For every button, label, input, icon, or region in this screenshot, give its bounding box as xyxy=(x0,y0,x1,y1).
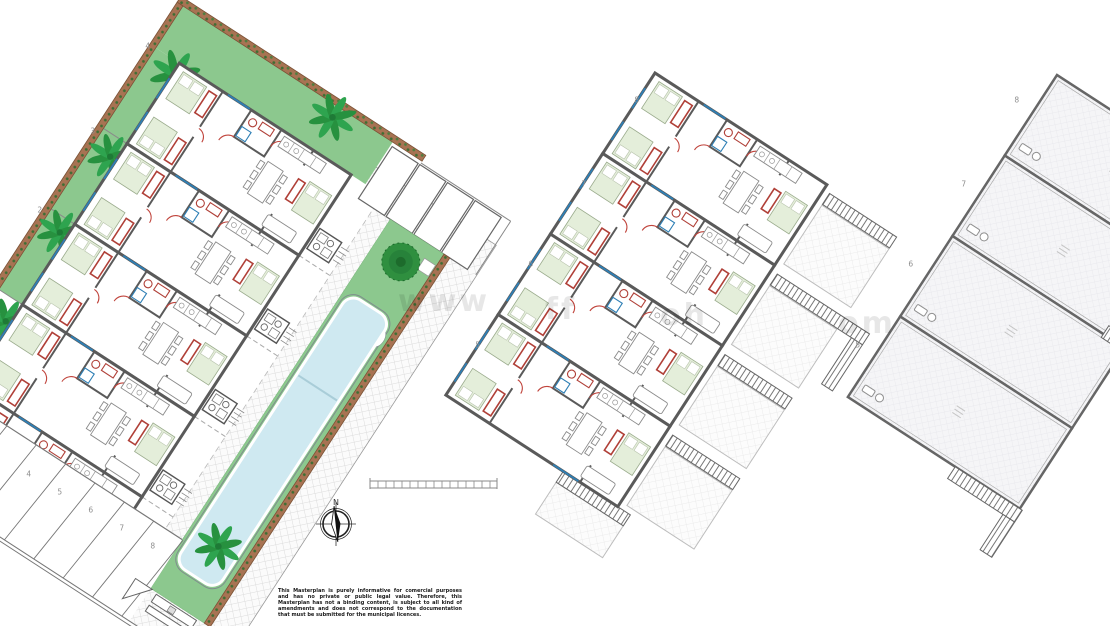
parking-label: 7 xyxy=(119,524,124,533)
unit-label: 4 xyxy=(145,42,150,51)
masterplan-canvas: N 4 3 2 8 7 6 5 8 7 6 5 4 5 6 7 8 www ff… xyxy=(0,0,1110,626)
scale-bar xyxy=(370,478,497,489)
middle-floor-plan xyxy=(418,73,925,613)
unit-label: 5 xyxy=(855,341,860,350)
watermark-fragment: ff xyxy=(545,292,577,327)
unit-label: 7 xyxy=(581,180,586,189)
parking-label: 8 xyxy=(150,542,155,551)
compass-north-label: N xyxy=(333,498,339,507)
watermark-fragment: www xyxy=(398,284,490,319)
watermark-fragment: oh xyxy=(660,298,708,333)
unit-label: 3 xyxy=(90,127,95,136)
unit-label: 8 xyxy=(634,96,639,105)
roof-units xyxy=(848,75,1110,509)
unit-label: 2 xyxy=(37,206,42,215)
disclaimer-text: This Masterplan is purely informative fo… xyxy=(278,588,462,618)
unit-label: 6 xyxy=(908,260,913,269)
unit-label: 7 xyxy=(961,180,966,189)
watermark-fragment: om xyxy=(838,306,896,341)
unit-label: 6 xyxy=(528,260,533,269)
parking-label: 6 xyxy=(88,506,93,515)
staircase xyxy=(980,514,1015,557)
parking-label: 4 xyxy=(26,470,31,479)
unit-label: 5 xyxy=(475,341,480,350)
parking-label: 5 xyxy=(57,488,62,497)
unit-label: 8 xyxy=(1014,96,1019,105)
